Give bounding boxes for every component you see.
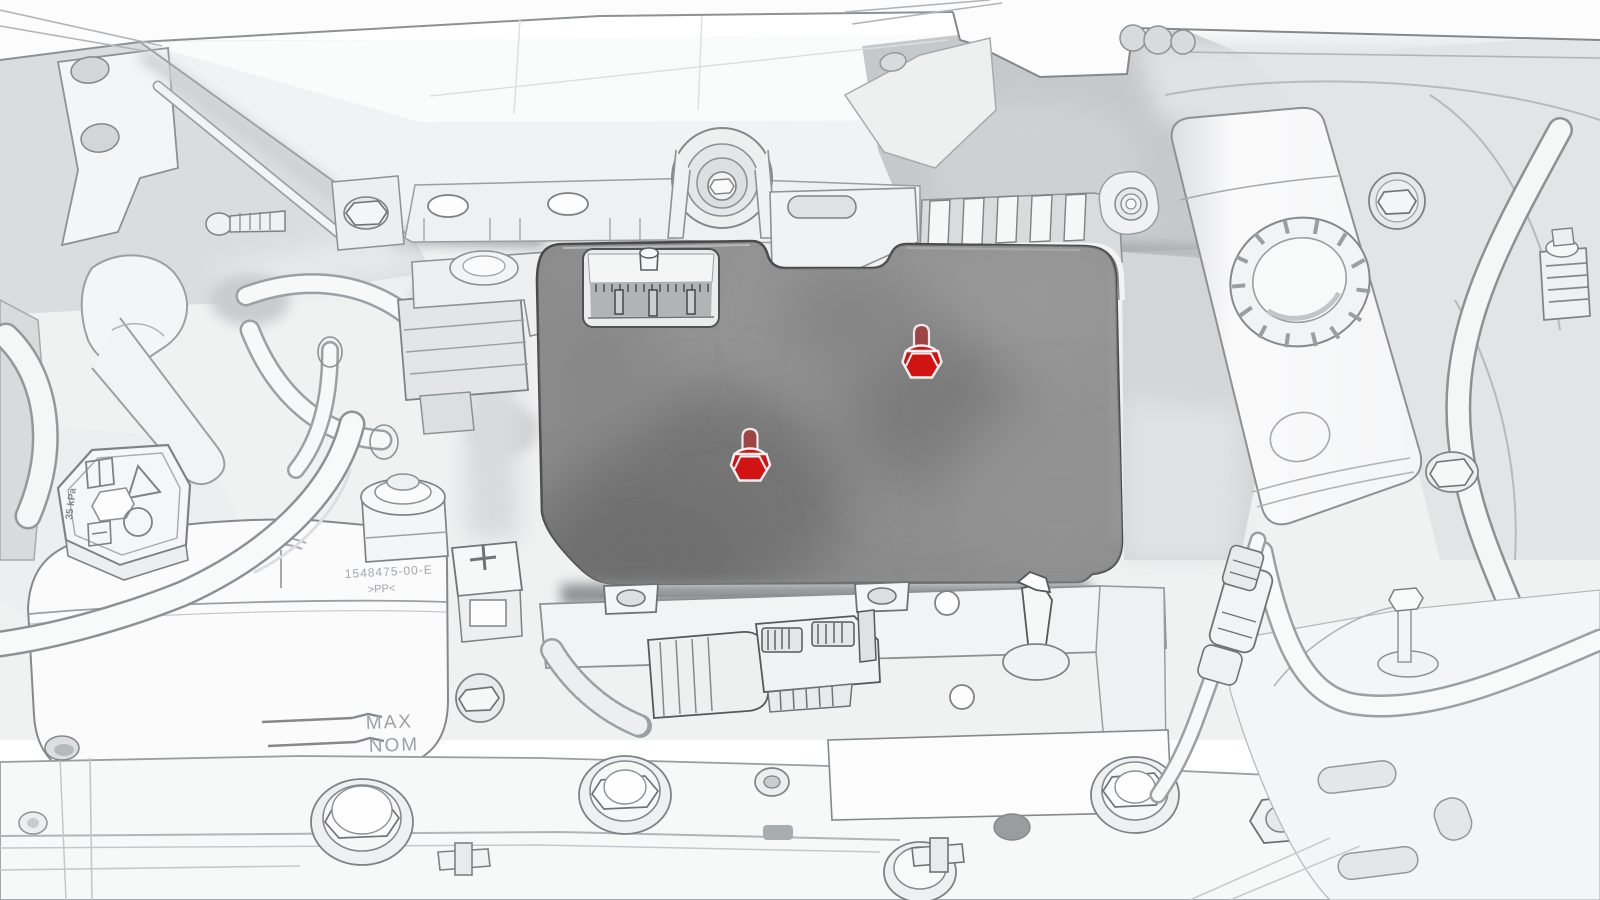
svg-text:MAX: MAX — [365, 711, 413, 734]
svg-text:>PP<: >PP< — [368, 583, 396, 596]
svg-text:NOM: NOM — [368, 734, 419, 757]
